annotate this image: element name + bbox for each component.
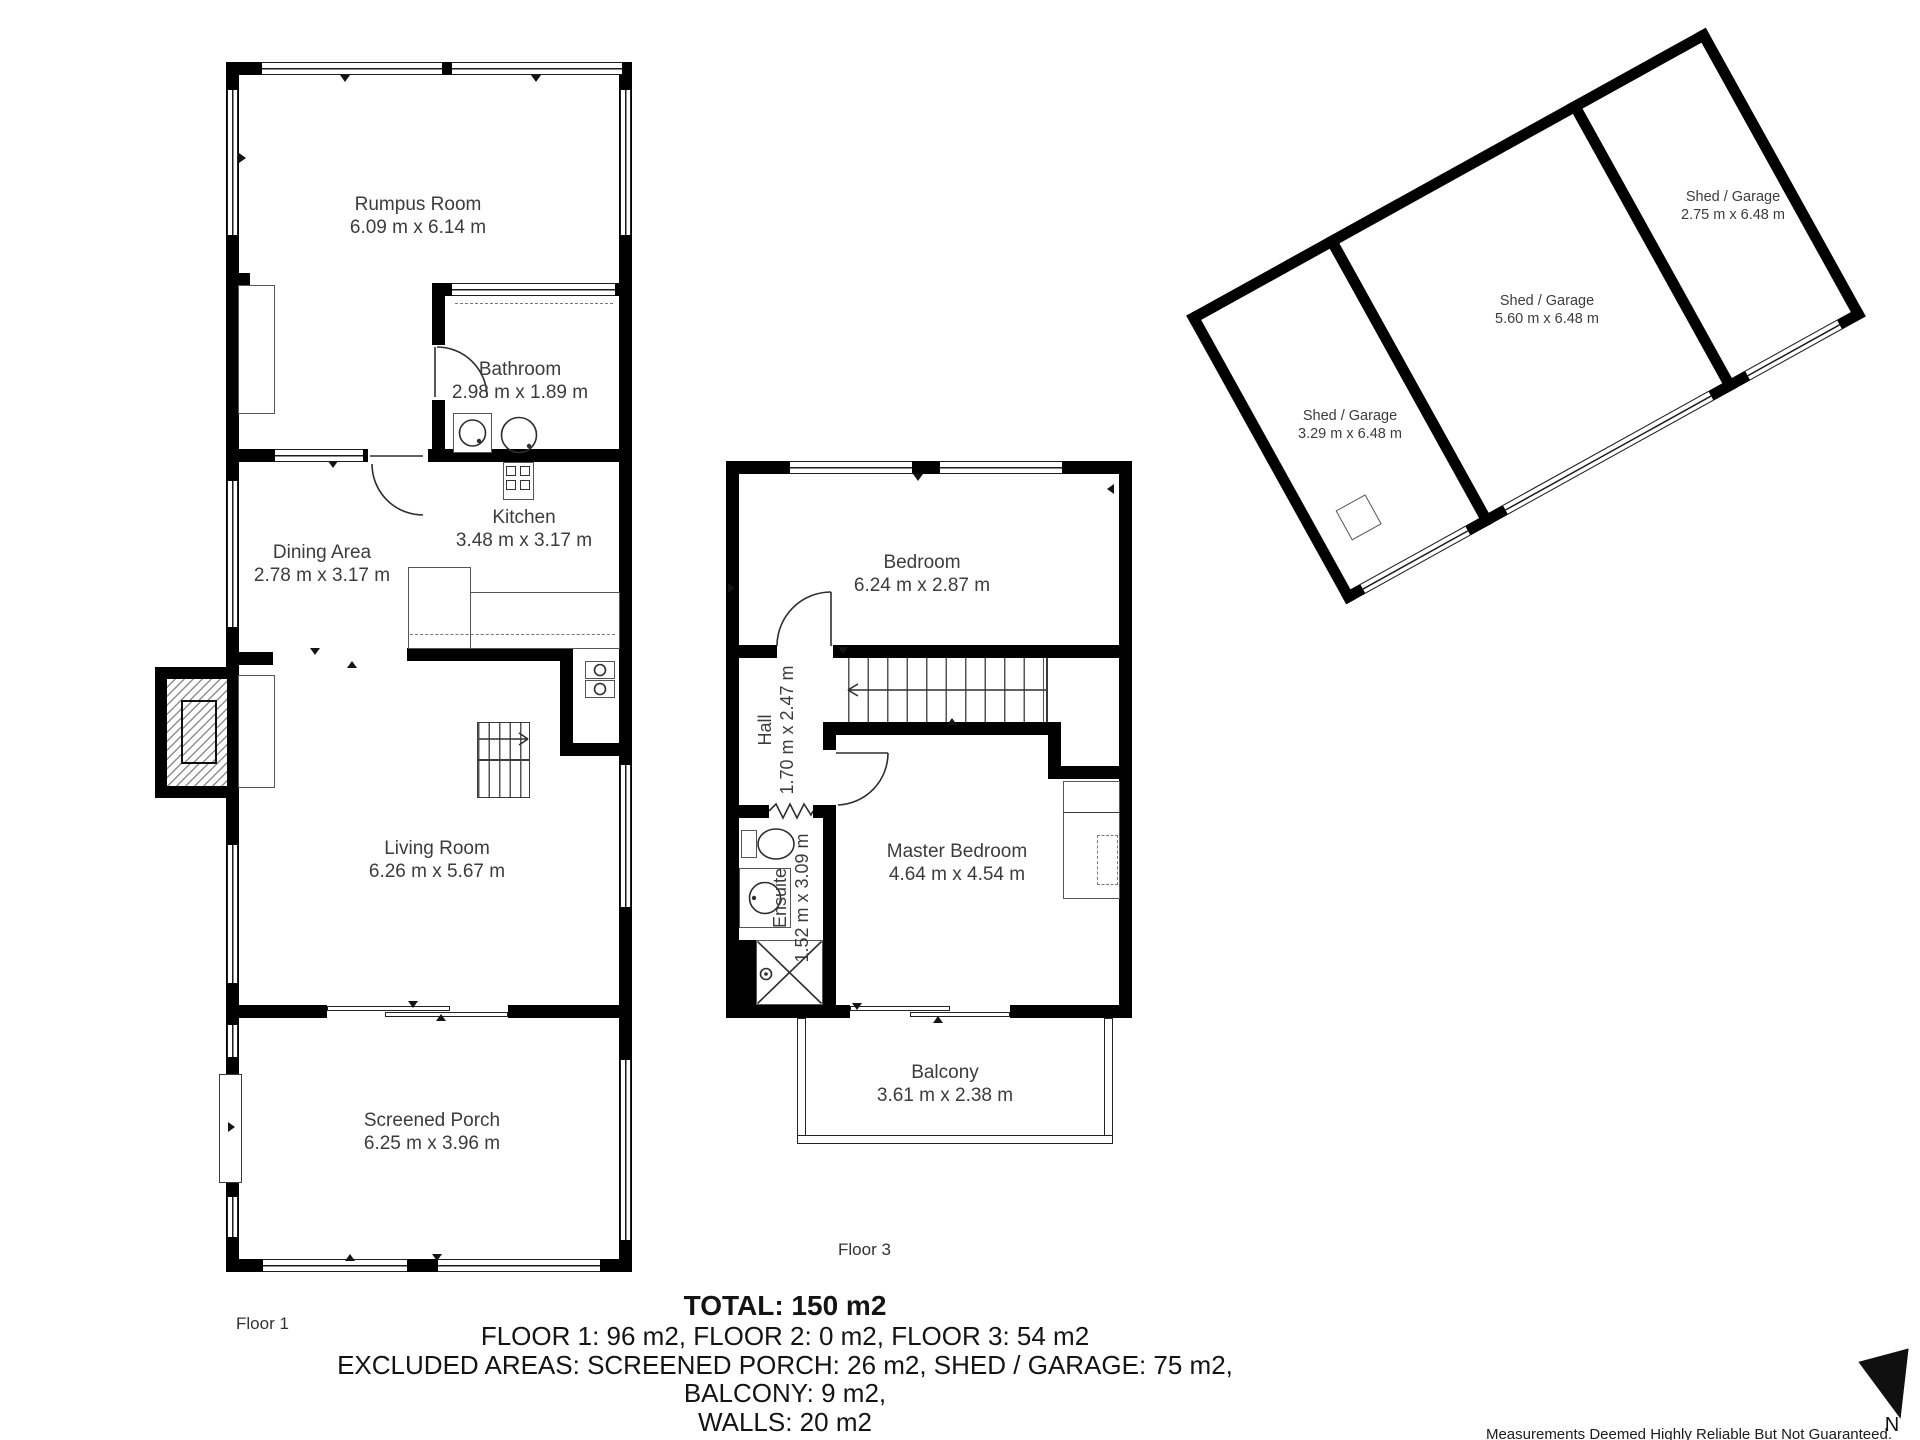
room-dims: 5.60 m x 6.48 m xyxy=(1467,310,1627,328)
room-dims: 2.98 m x 1.89 m xyxy=(420,381,620,404)
room-dims: 4.64 m x 4.54 m xyxy=(857,863,1057,886)
room-name: Bedroom xyxy=(822,551,1022,574)
room-label-dining: Dining Area 2.78 m x 3.17 m xyxy=(222,541,422,587)
room-label-rumpus: Rumpus Room 6.09 m x 6.14 m xyxy=(318,193,518,239)
shed-section-label: Shed / Garage 5.60 m x 6.48 m xyxy=(1467,292,1627,328)
room-name: Shed / Garage xyxy=(1270,407,1430,425)
stair-arrow xyxy=(848,684,1046,696)
room-label-living: Living Room 6.26 m x 5.67 m xyxy=(337,837,537,883)
room-name: Kitchen xyxy=(424,506,624,529)
room-label-bathroom: Bathroom 2.98 m x 1.89 m xyxy=(420,358,620,404)
room-label-bedroom: Bedroom 6.24 m x 2.87 m xyxy=(822,551,1022,597)
stair-arrow xyxy=(479,733,528,745)
room-dims: 3.29 m x 6.48 m xyxy=(1270,425,1430,443)
room-dims: 3.61 m x 2.38 m xyxy=(845,1084,1045,1107)
room-dims: 6.25 m x 3.96 m xyxy=(332,1132,532,1155)
floorplan-canvas: Rumpus Room 6.09 m x 6.14 m Bathroom 2.9… xyxy=(0,0,1920,1440)
floor-areas-text: FLOOR 1: 96 m2, FLOOR 2: 0 m2, FLOOR 3: … xyxy=(285,1322,1285,1351)
door-arc xyxy=(777,592,831,646)
room-name: Living Room xyxy=(337,837,537,860)
sink-bowl-icon xyxy=(595,684,606,695)
tap-dot xyxy=(527,444,531,448)
basin-icon xyxy=(460,420,486,446)
walls-area-text: WALLS: 20 m2 xyxy=(285,1408,1285,1437)
room-name: Bathroom xyxy=(420,358,620,381)
tap-dot xyxy=(764,972,768,976)
room-dims: 1.52 m x 3.09 m xyxy=(791,813,813,983)
excluded-areas-text: EXCLUDED AREAS: SCREENED PORCH: 26 m2, S… xyxy=(285,1351,1285,1408)
room-dims: 2.75 m x 6.48 m xyxy=(1653,206,1813,224)
total-area-text: TOTAL: 150 m2 xyxy=(285,1290,1285,1322)
plan-annotations xyxy=(0,0,1920,1440)
sink-bowl-icon xyxy=(595,665,606,676)
room-name: Balcony xyxy=(845,1061,1045,1084)
room-label-hall: Hall 1.70 m x 2.47 m xyxy=(754,650,798,810)
door-arc xyxy=(372,464,423,515)
room-name: Shed / Garage xyxy=(1467,292,1627,310)
tap-dot xyxy=(752,896,756,900)
floor1-label: Floor 1 xyxy=(236,1314,289,1334)
room-name: Hall xyxy=(754,650,776,810)
room-dims: 3.48 m x 3.17 m xyxy=(424,529,624,552)
room-name: Screened Porch xyxy=(332,1109,532,1132)
room-name: Dining Area xyxy=(222,541,422,564)
door-arc xyxy=(838,753,888,805)
shed-section-label: Shed / Garage 2.75 m x 6.48 m xyxy=(1653,188,1813,224)
room-label-porch: Screened Porch 6.25 m x 3.96 m xyxy=(332,1109,532,1155)
disclaimer-text: Measurements Deemed Highly Reliable But … xyxy=(1200,1426,1892,1440)
room-name: Rumpus Room xyxy=(318,193,518,216)
room-name: Ensuite xyxy=(769,813,791,983)
room-dims: 6.26 m x 5.67 m xyxy=(337,860,537,883)
room-dims: 1.70 m x 2.47 m xyxy=(776,650,798,810)
tap-dot xyxy=(477,439,481,443)
room-dims: 6.09 m x 6.14 m xyxy=(318,216,518,239)
shed-section-label: Shed / Garage 3.29 m x 6.48 m xyxy=(1270,407,1430,443)
round-fixture-icon xyxy=(502,418,537,453)
room-label-master: Master Bedroom 4.64 m x 4.54 m xyxy=(857,840,1057,886)
room-name: Shed / Garage xyxy=(1653,188,1813,206)
floor3-label: Floor 3 xyxy=(838,1240,891,1260)
room-dims: 6.24 m x 2.87 m xyxy=(822,574,1022,597)
room-dims: 2.78 m x 3.17 m xyxy=(222,564,422,587)
room-name: Master Bedroom xyxy=(857,840,1057,863)
room-label-ensuite: Ensuite 1.52 m x 3.09 m xyxy=(769,813,813,983)
area-summary: TOTAL: 150 m2 FLOOR 1: 96 m2, FLOOR 2: 0… xyxy=(285,1290,1285,1436)
room-label-balcony: Balcony 3.61 m x 2.38 m xyxy=(845,1061,1045,1107)
room-label-kitchen: Kitchen 3.48 m x 3.17 m xyxy=(424,506,624,552)
